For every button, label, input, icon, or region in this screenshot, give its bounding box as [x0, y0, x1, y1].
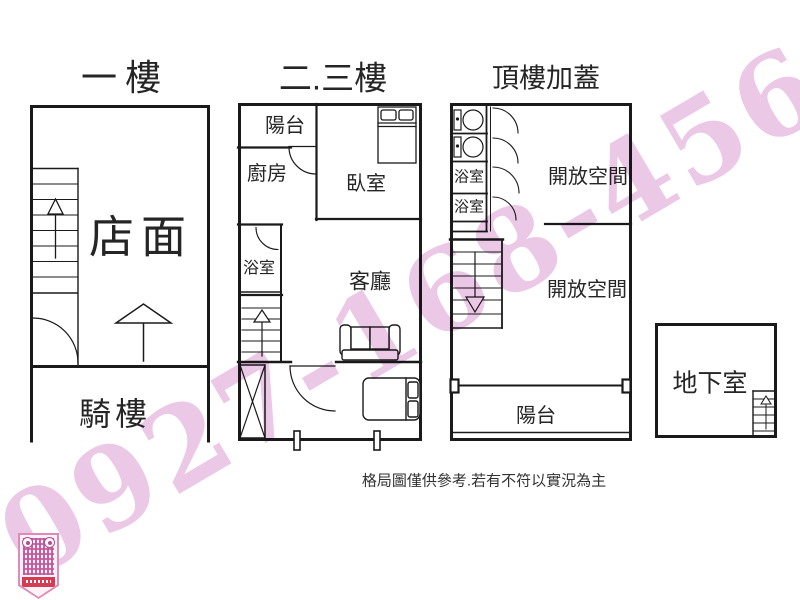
room-label-shop: 店面: [89, 215, 193, 260]
floor3-staircase-icon: [450, 240, 503, 329]
floor3-outline: [451, 104, 631, 440]
room-label-basement: 地下室: [672, 372, 747, 397]
room-label-arcade: 騎樓: [79, 398, 151, 430]
qr-finder-topleft-icon: [22, 537, 33, 548]
room-label-open-space-lower: 開放空間: [547, 280, 627, 300]
floor3-title: 頂樓加蓋: [492, 66, 600, 93]
basement-stairs-up-arrow: [761, 396, 771, 429]
floor2-title: 二.三樓: [279, 62, 387, 95]
floor3-stairs-down-arrow: [466, 252, 484, 312]
floor3-balcony-wall: [451, 380, 631, 393]
room-label-living: 客廳: [349, 272, 391, 293]
floor1-door-arc-icon: [33, 318, 78, 363]
floor2-lower-door-icon: [290, 366, 335, 411]
qr-background: [20, 535, 57, 597]
room-label-balcony-2f: 陽台: [265, 116, 305, 136]
floor1-title: 一樓: [81, 60, 169, 96]
qr-finder-topright-icon: [44, 537, 55, 548]
floor1-entrance-arrow-icon: [116, 304, 171, 361]
floor1-outline: [32, 107, 209, 442]
floor3-door-arcs-icon: [493, 108, 519, 220]
floor3-toilet-icon-2: [454, 137, 483, 157]
floor2-staircase-icon: [240, 295, 282, 352]
floor2-sofa-icon: [340, 325, 400, 360]
room-label-bathroom-2f: 浴室: [243, 261, 275, 277]
floorplan-page: 一樓 二.三樓 頂樓加蓋 店面 騎樓 陽台 廚房 臥室 浴室 客廳 浴室 浴室 …: [0, 0, 800, 600]
room-label-open-space-upper: 開放空間: [548, 167, 628, 187]
disclaimer-text: 格局圖僅供參考.若有不符以實況為主: [362, 474, 606, 489]
floor2-bed-icon: [378, 107, 416, 163]
basement-staircase-icon: [753, 391, 775, 436]
room-label-kitchen: 廚房: [247, 164, 287, 184]
room-label-bedroom: 臥室: [346, 174, 386, 194]
floor2-stairs-up-arrow: [254, 310, 270, 356]
room-label-balcony-3f: 陽台: [516, 406, 556, 426]
room-label-bathroom-3f-2: 浴室: [454, 200, 484, 215]
floor2-balcony-door-icon: [289, 147, 316, 175]
floor3-toilet-icon-1: [454, 110, 483, 130]
floor1-stairs-up-arrow: [48, 199, 63, 258]
qr-banner: [22, 577, 55, 587]
floor2-wardrobe-icon: [240, 365, 265, 438]
room-label-bathroom-3f-1: 浴室: [454, 170, 484, 185]
floor2-bathroom-door-arc-icon: [256, 228, 278, 250]
floor2-lower-bed-icon: [363, 378, 420, 420]
qr-code-icon: [18, 533, 59, 599]
qr-banner-caption: [26, 580, 51, 583]
